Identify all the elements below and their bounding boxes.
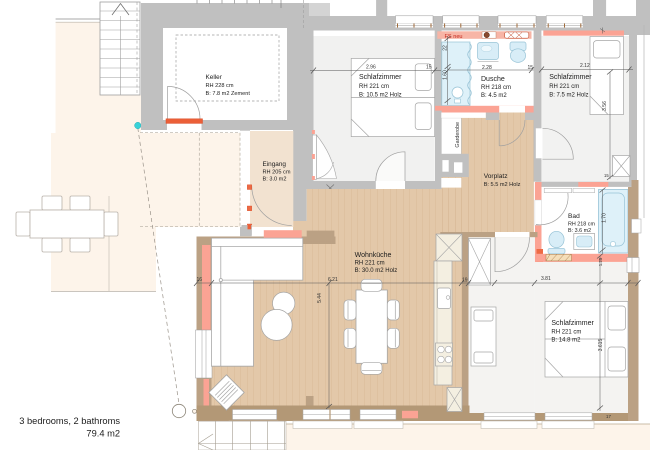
svg-text:RH 218 cm: RH 218 cm bbox=[481, 85, 511, 91]
svg-text:RH 218 cm: RH 218 cm bbox=[568, 222, 595, 228]
svg-text:3.81: 3.81 bbox=[541, 276, 551, 282]
svg-text:19: 19 bbox=[462, 278, 468, 284]
svg-text:RH 228 cm: RH 228 cm bbox=[206, 83, 234, 89]
svg-text:1.60: 1.60 bbox=[443, 70, 449, 80]
svg-text:RH 221 cm: RH 221 cm bbox=[549, 84, 579, 90]
svg-text:B: 4.5 m2: B: 4.5 m2 bbox=[481, 93, 507, 99]
svg-text:RH 221 cm: RH 221 cm bbox=[551, 330, 581, 336]
svg-text:B: 3.0 m2: B: 3.0 m2 bbox=[263, 177, 287, 183]
svg-text:B: 7.8 m2 Zement: B: 7.8 m2 Zement bbox=[206, 91, 251, 97]
svg-text:B: 3.6 m2: B: 3.6 m2 bbox=[568, 228, 591, 234]
svg-text:Eingang: Eingang bbox=[263, 161, 287, 168]
svg-text:B: 7.5 m2 Holz: B: 7.5 m2 Holz bbox=[549, 93, 588, 99]
svg-text:2.12: 2.12 bbox=[580, 63, 590, 69]
svg-text:Dusche: Dusche bbox=[481, 76, 505, 83]
svg-text:22: 22 bbox=[443, 45, 449, 51]
svg-text:RH 205 cm: RH 205 cm bbox=[263, 170, 291, 176]
svg-text:79.4 m2: 79.4 m2 bbox=[86, 429, 120, 439]
svg-text:6.21: 6.21 bbox=[328, 277, 338, 283]
svg-text:B: 14.8 m2: B: 14.8 m2 bbox=[551, 338, 581, 344]
svg-text:Bad: Bad bbox=[568, 213, 580, 220]
svg-text:1.70: 1.70 bbox=[602, 213, 608, 223]
svg-text:1.25: 1.25 bbox=[598, 257, 603, 266]
svg-text:3.56: 3.56 bbox=[602, 101, 608, 111]
svg-text:Wohnküche: Wohnküche bbox=[355, 252, 392, 259]
svg-text:2.96: 2.96 bbox=[366, 65, 376, 71]
svg-text:5.44: 5.44 bbox=[317, 293, 323, 303]
svg-text:B: 5.5 m2 Holz: B: 5.5 m2 Holz bbox=[484, 182, 521, 188]
svg-text:RH 221 cm: RH 221 cm bbox=[359, 84, 389, 90]
svg-text:15: 15 bbox=[528, 65, 534, 71]
svg-text:16: 16 bbox=[197, 277, 203, 283]
svg-text:Schlafzimmer: Schlafzimmer bbox=[549, 74, 592, 81]
svg-text:B: 30.0 m2 Holz: B: 30.0 m2 Holz bbox=[355, 268, 398, 274]
svg-text:Vorplatz: Vorplatz bbox=[484, 173, 508, 180]
svg-text:2.28: 2.28 bbox=[482, 65, 492, 71]
svg-text:3 bedrooms, 2 bathroms: 3 bedrooms, 2 bathroms bbox=[19, 416, 120, 426]
svg-text:RH 221 cm: RH 221 cm bbox=[355, 261, 385, 267]
svg-text:Garderobe: Garderobe bbox=[455, 122, 461, 148]
svg-text:B: 10.5 m2 Holz: B: 10.5 m2 Holz bbox=[359, 93, 402, 99]
svg-text:Schlafzimmer: Schlafzimmer bbox=[359, 74, 402, 81]
svg-text:17: 17 bbox=[606, 414, 611, 419]
svg-text:3.615: 3.615 bbox=[598, 339, 604, 352]
svg-text:Schlafzimmer: Schlafzimmer bbox=[551, 320, 594, 327]
svg-text:15: 15 bbox=[604, 173, 609, 178]
svg-text:Keller: Keller bbox=[206, 74, 223, 81]
svg-text:15: 15 bbox=[426, 65, 432, 71]
